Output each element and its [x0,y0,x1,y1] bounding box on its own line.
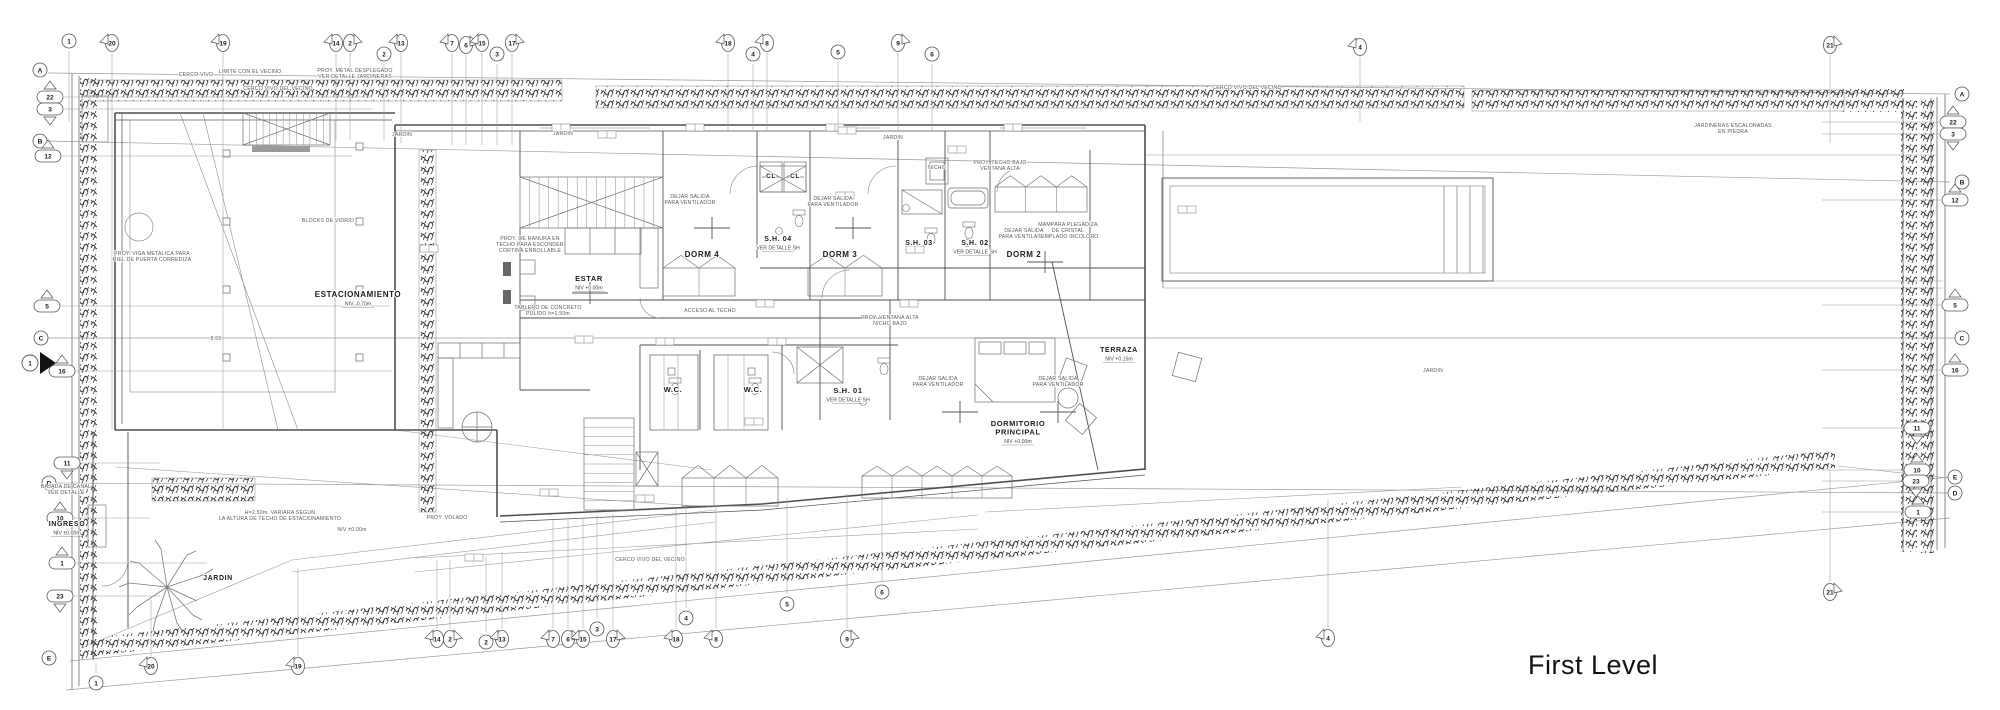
svg-text:17: 17 [609,636,617,643]
svg-text:20: 20 [108,40,116,47]
note-text: DEJAR SALIDAPARA VENTILADOR [1032,376,1083,388]
room-label: DORMITORIOPRINCIPALNIV +0.00m [991,419,1046,445]
grid-bubble: 18 [664,630,683,648]
svg-text:D: D [1953,490,1958,497]
svg-text:15: 15 [579,636,587,643]
svg-text:9: 9 [896,40,900,47]
grid-bubble: 19 [286,657,305,675]
room-label: DORM 2 [1007,250,1042,259]
svg-text:S.H. 01: S.H. 01 [833,386,862,395]
svg-text:14: 14 [433,636,441,643]
grid-bubble: 20 [100,34,119,52]
svg-text:6: 6 [930,51,934,58]
svg-text:21: 21 [1826,589,1834,596]
svg-text:C: C [1960,335,1965,342]
building-walls [93,113,1145,660]
grid-bubble: 15 [470,34,489,52]
grid-bubble: 2 [344,34,363,52]
note-text: PROY. VIGA METALICA PARARIEL DE PUERTA C… [113,251,192,263]
svg-text:NIV +0.15m: NIV +0.15m [1105,357,1133,363]
svg-text:E: E [47,655,52,662]
svg-text:9: 9 [845,636,849,643]
grid-bubble: 9 [892,34,911,52]
grid-bubble: 5 [1942,289,1968,311]
svg-text:2: 2 [484,639,488,646]
svg-text:DORM 3: DORM 3 [823,250,858,259]
svg-text:7: 7 [551,636,555,643]
note-text: NICHO [928,165,946,171]
svg-text:ESTAR: ESTAR [575,274,603,283]
svg-text:3: 3 [48,106,52,113]
grid-bubble: 3 [590,622,604,636]
garden-tree [119,540,213,632]
grid-bubble: 5 [831,45,845,59]
svg-text:6: 6 [464,42,468,49]
room-label: CL [766,173,776,180]
grid-bubble: 14 [425,630,444,648]
note-text: TABLERO DE CONCRETOPULIDO h=1.50m [514,305,581,317]
grid-bubble: 3 [1940,128,1966,150]
note-text: JARDIN [1423,368,1443,374]
room-label: S.H. 01VER DETALLE SH [826,386,870,404]
grid-bubble: 2 [377,47,391,61]
svg-text:12: 12 [1951,197,1959,204]
svg-text:13: 13 [498,636,506,643]
svg-text:21: 21 [1826,42,1834,49]
svg-text:2: 2 [382,51,386,58]
grid-bubble: 17 [506,34,525,52]
svg-text:22: 22 [1949,119,1957,126]
svg-text:23: 23 [56,593,64,600]
svg-text:11: 11 [1914,425,1921,432]
note-text: 8.55 [211,336,222,342]
room-label: DORM 4 [685,250,720,259]
svg-text:W.C.: W.C. [744,385,763,394]
note-text: DEJAR SALIDAPARA VENTILADOR [912,376,963,388]
grid-bubble: 14 [324,34,343,52]
door-arcs [102,166,1021,586]
svg-text:VER DETALLE SH: VER DETALLE SH [826,398,870,404]
grid-leaders [61,51,1941,673]
note-text: PROY. VENTANA ALTANICHO BAJO [861,315,919,327]
note-text: JARDIN [553,131,573,137]
svg-text:5: 5 [45,303,49,310]
grid-bubble: 18 [716,34,735,52]
svg-text:16: 16 [58,368,66,375]
svg-text:NIV +0.00m: NIV +0.00m [1004,439,1032,445]
room-label: W.C. [664,385,683,394]
note-text: H=2.50m. VARIARA SEGUNLA ALTURA DE TECHO… [219,510,341,522]
sheet-title: First Level [1528,650,1658,681]
svg-text:4: 4 [1326,635,1330,642]
room-label: W.C. [744,385,763,394]
note-text: CERCO VIVO DEL VECINO [243,86,312,92]
svg-text:INGRESO: INGRESO [49,521,85,528]
note-text: CERCO VIVO DEL VECINO [1212,85,1281,91]
svg-text:1: 1 [94,680,98,687]
stairs [243,113,663,510]
note-text: BLOCKS DE VIDRIO [302,218,354,224]
svg-text:11: 11 [64,460,71,467]
grid-bubble: 21 [1824,36,1843,54]
grid-bubble: 9 [841,630,860,648]
svg-text:DORM 4: DORM 4 [685,250,720,259]
note-text: NIV ±0.00m [337,527,366,533]
note-text: CERCO VIVO DEL VECINO [615,557,684,563]
svg-text:5: 5 [785,601,789,608]
grid-bubble: 16 [49,355,75,377]
grid-bubble: 5 [780,597,794,611]
grid-bubble: 6 [925,47,939,61]
grid-bubble: 6 [875,585,889,599]
note-text: LIMITE CON EL VECINO [219,69,282,75]
svg-text:TERRAZA: TERRAZA [1100,347,1138,354]
svg-text:13: 13 [397,40,405,47]
grid-bubble: 4 [679,611,693,625]
room-label: S.H. 04VER DETALLE SH [756,236,800,252]
grid-bubble: 3 [490,47,504,61]
grid-bubble: 11 [54,457,80,479]
svg-text:C: C [39,335,44,342]
grid-bubble: 2 [444,630,463,648]
grid-bubble: 1 [62,34,76,48]
svg-text:18: 18 [672,636,680,643]
svg-text:W.C.: W.C. [664,385,683,394]
note-text: CERCO VIVO [179,72,214,78]
svg-text:JARDIN: JARDIN [203,575,233,582]
grid-bubble: 13 [389,34,408,52]
room-labels: ESTACIONAMIENTONIV -0.70mESTARNIV +0.00m… [49,173,1138,582]
grid-bubble: 17 [607,630,626,648]
floor-plan: 1201914221376153171848596421120191422137… [0,0,2000,710]
room-label: INGRESONIV ±0.00m [49,521,85,537]
svg-text:7: 7 [450,40,454,47]
svg-text:S.H. 02: S.H. 02 [961,240,989,247]
note-text: DEJAR SALIDAPARA VENTILADOR [664,194,715,206]
grid-markers: 1201914221376153171848596421120191422137… [22,34,1969,690]
svg-text:22: 22 [46,94,54,101]
grid-bubble: 4 [1348,38,1367,56]
svg-text:20: 20 [147,663,155,670]
svg-text:NIV ±0.00m: NIV ±0.00m [53,531,80,537]
svg-text:5: 5 [1953,302,1957,309]
grid-bubble: 22 [1940,106,1966,128]
svg-text:VER DETALLE SH: VER DETALLE SH [756,246,800,252]
note-text: DEJAR SALIDAPARA VENTILADOR [807,196,858,208]
svg-text:1: 1 [28,360,32,367]
grid-bubble: C [34,331,48,345]
svg-text:5: 5 [836,49,840,56]
room-label: TERRAZANIV +0.15m [1100,347,1138,363]
svg-text:12: 12 [44,153,52,160]
grid-bubble: E [42,651,56,665]
grid-bubble: 4 [1316,629,1335,647]
svg-text:DORM 2: DORM 2 [1007,250,1042,259]
svg-text:3: 3 [595,626,599,633]
grid-bubble: 22 [37,81,63,103]
svg-text:8: 8 [714,636,718,643]
room-label: S.H. 03 [905,240,933,247]
svg-text:ESTACIONAMIENTO: ESTACIONAMIENTO [315,290,401,299]
svg-text:B: B [1960,179,1965,186]
note-text: JARDIN [392,132,412,138]
grid-bubble: A [1955,87,1969,101]
note-text: JARDINERAS ESCALONADASEN PIEDRA [1694,123,1772,135]
grid-bubble: 1 [49,547,75,569]
svg-text:18: 18 [724,40,732,47]
svg-text:CL: CL [766,173,776,180]
pool [1162,131,1493,288]
svg-text:4: 4 [1358,44,1362,51]
grid-bubble: 7 [541,630,560,648]
svg-text:14: 14 [332,40,340,47]
svg-text:6: 6 [880,589,884,596]
room-label: DORM 3 [823,250,858,259]
svg-text:19: 19 [294,663,302,670]
room-label: ESTACIONAMIENTONIV -0.70m [315,290,401,308]
svg-text:4: 4 [751,51,755,58]
note-text: BAJADA DE CANALVER DETALLE [41,484,91,496]
svg-text:NIV -0.70m: NIV -0.70m [345,302,371,308]
svg-text:A: A [1960,91,1965,98]
svg-text:15: 15 [478,40,486,47]
svg-text:2: 2 [448,636,452,643]
grid-bubble: 20 [139,657,158,675]
note-text: ACCESO AL TECHO [684,308,736,314]
svg-text:3: 3 [495,51,499,58]
note-text: PROY. DE RANURA ENTECHO PARA ESCONDERCOR… [496,236,564,254]
svg-text:CL: CL [790,173,800,180]
svg-text:6: 6 [566,636,570,643]
grid-bubble: 7 [440,34,459,52]
svg-text:S.H. 04: S.H. 04 [764,236,792,243]
svg-text:DORMITORIOPRINCIPAL: DORMITORIOPRINCIPAL [991,419,1046,437]
misc-symbols [223,113,1087,506]
svg-text:17: 17 [508,40,516,47]
room-label: JARDIN [203,575,233,582]
svg-text:1: 1 [67,38,71,45]
svg-text:1: 1 [1916,509,1920,516]
svg-text:NIV +0.00m: NIV +0.00m [575,286,603,292]
note-text: PROY. TECHO BAJOVENTANA ALTA [973,160,1026,172]
grid-bubble: 4 [746,47,760,61]
note-text: PROY. VOLADO [427,515,468,521]
grid-bubble: 16 [1942,354,1968,376]
svg-text:B: B [38,138,43,145]
grid-bubble: 3 [37,103,63,125]
svg-text:A: A [38,67,43,74]
grid-bubble: 8 [704,630,723,648]
svg-text:E: E [1953,474,1958,481]
svg-text:S.H. 03: S.H. 03 [905,240,933,247]
grid-bubble: 21 [1824,583,1843,601]
svg-text:19: 19 [219,40,227,47]
grid-bubble: 5 [34,290,60,312]
svg-text:1: 1 [60,560,64,567]
svg-text:3: 3 [1951,131,1955,138]
room-label: CL [790,173,800,180]
grid-bubble: C [1955,331,1969,345]
grid-bubble: 19 [211,34,230,52]
grid-bubble: 23 [47,590,73,612]
note-text: JARDIN [883,135,903,141]
svg-text:16: 16 [1951,367,1959,374]
note-text: PROY. METAL DESPLEGADOVER DETALLE JARDIN… [317,68,392,80]
grid-bubble: D [1948,486,1962,500]
grid-bubble: E [1948,470,1962,484]
svg-text:10: 10 [1913,467,1921,474]
room-label: ESTARNIV +0.00m [573,274,605,292]
grid-bubble: A [33,63,47,77]
svg-text:23: 23 [1912,478,1920,485]
svg-text:4: 4 [684,615,688,622]
grid-bubble: 1 [89,676,103,690]
note-text: MAMPARA PLEGADIZADE CRISTALTEMPLADO INCO… [1037,222,1098,240]
svg-text:8: 8 [765,40,769,47]
svg-text:VER DETALLE SH: VER DETALLE SH [953,250,997,256]
svg-text:2: 2 [348,40,352,47]
floor-plan-drawing: 1201914221376153171848596421120191422137… [0,0,2000,710]
